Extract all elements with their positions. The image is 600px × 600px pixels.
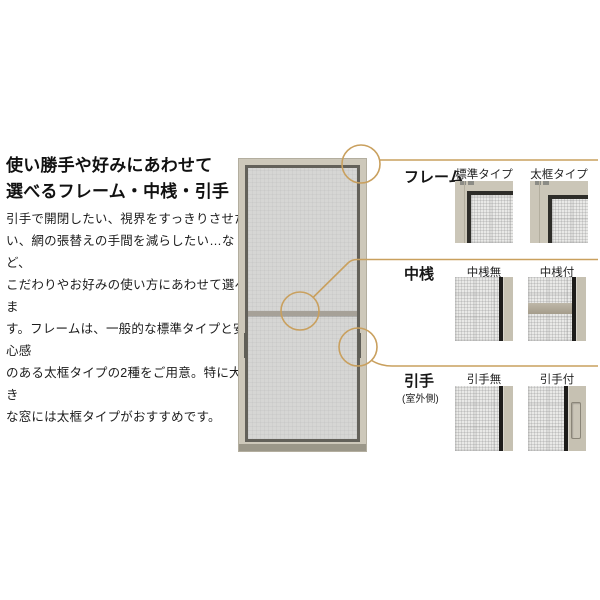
page-title: 使い勝手や好みにあわせて 選べるフレーム・中桟・引手 [6,153,246,205]
thumb-rail-with [528,277,586,341]
thumb-frame-thick [530,181,588,243]
thumb-rail-without [455,277,513,341]
door-inner-frame [245,165,360,442]
frame-joint-line [539,181,540,243]
section-label-handle: 引手 [404,370,434,391]
thumb-handle-without [455,386,513,451]
pull-handle-icon [571,402,581,439]
door-left-handle [244,333,247,358]
section-sublabel-handle: (室外側) [402,390,439,405]
option-label-frame-thick: 太框タイプ [528,166,590,182]
section-label-rail: 中桟 [404,263,434,284]
page: 使い勝手や好みにあわせて 選べるフレーム・中桟・引手 引手で開閉したい、視界をす… [0,0,600,600]
frame-cap-icon [468,181,474,185]
option-label-frame-standard: 標準タイプ [453,166,515,182]
frame-strip [503,277,513,341]
mesh-panel [455,386,499,451]
middle-rail-bar [528,303,572,314]
frame-cap-icon [460,181,466,185]
mesh-panel [455,277,499,341]
mesh-corner [548,195,588,243]
frame-cap-icon [543,181,549,185]
frame-cap-icon [535,181,541,185]
mesh-panel [528,386,564,451]
thumb-handle-with [528,386,586,451]
option-label-handle-with: 引手付 [526,371,588,387]
door-right-handle [358,333,361,358]
mesh-corner [467,191,513,243]
door-middle-rail [248,311,357,316]
leader-line-handle [371,360,598,366]
door-bottom-frame [239,444,366,451]
option-label-handle-without: 引手無 [453,371,515,387]
frame-strip [503,386,513,451]
screen-door-illustration [238,158,367,452]
intro-paragraph: 引手で開閉したい、視界をすっきりさせた い、網の張替えの手間を減らしたい…など、… [6,208,248,428]
thumb-frame-standard [455,181,513,243]
frame-strip [576,277,586,341]
frame-joint-line [464,181,465,243]
